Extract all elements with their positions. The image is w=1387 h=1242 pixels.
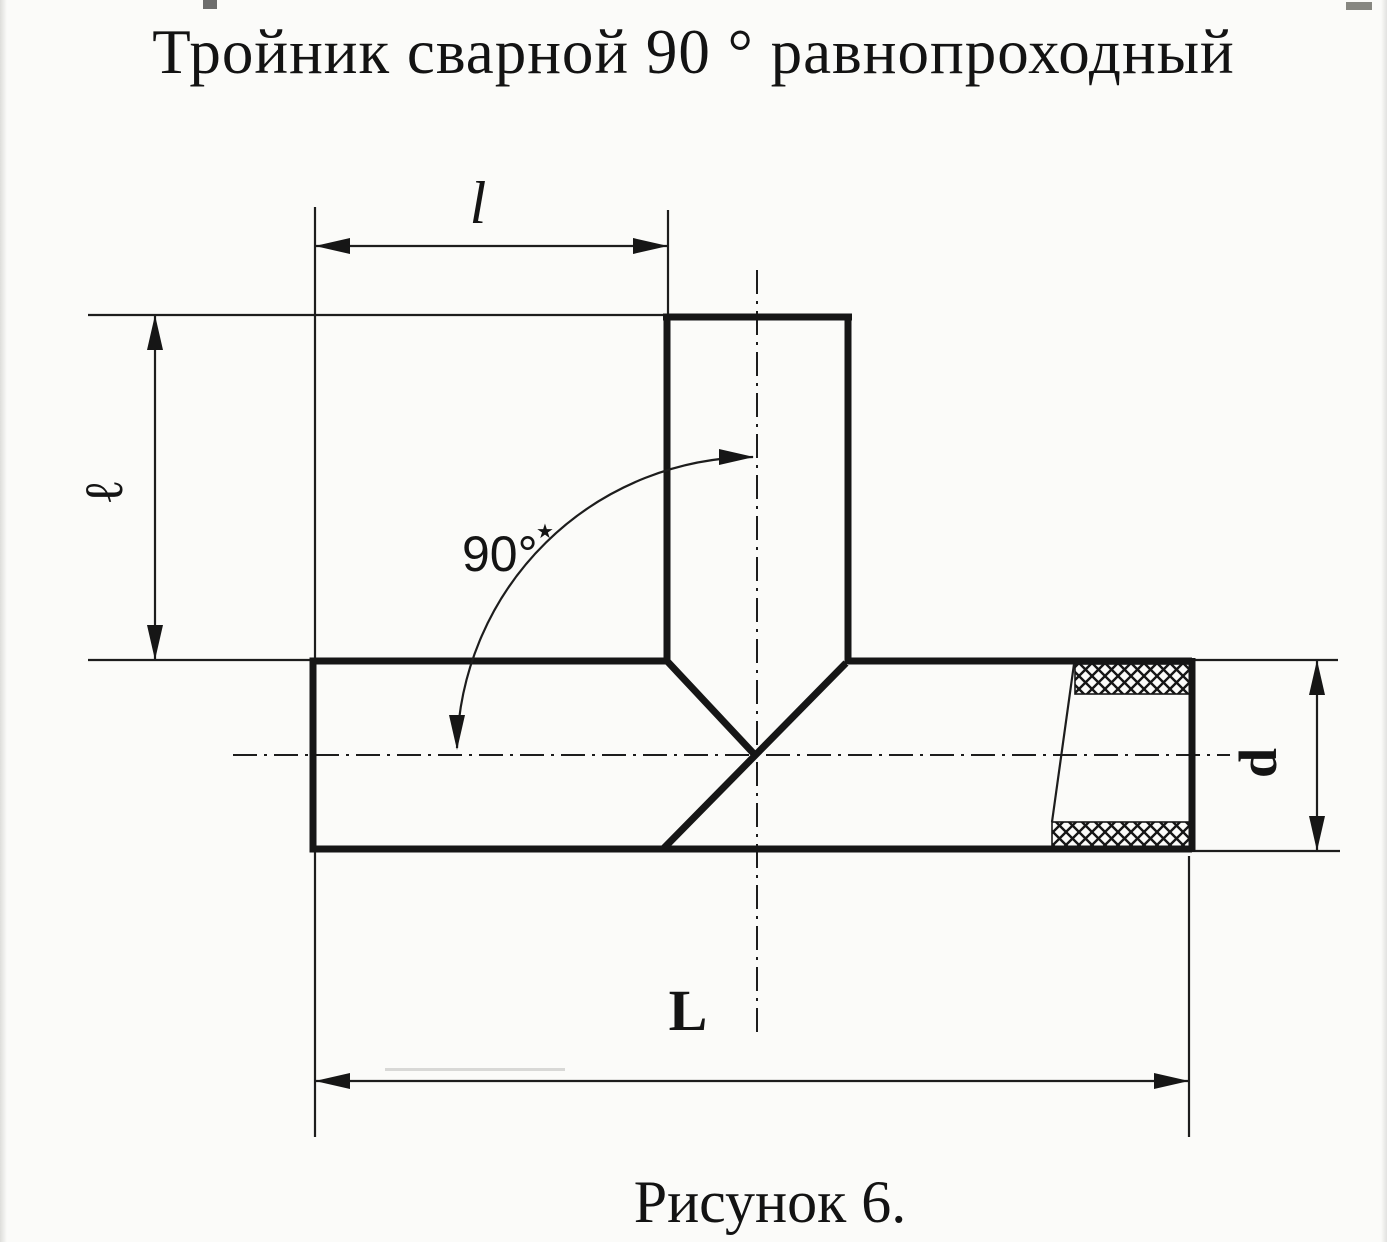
wall-section-hatch-bottom [1052,822,1190,848]
dimension-l: l [315,170,668,254]
arrowhead-right-icon [633,238,668,254]
arrowhead-arc-right-icon [719,449,754,465]
arrowhead-down-icon [1309,816,1325,851]
wall-section-hatch-top [1075,664,1190,694]
label-diameter: d [1228,748,1288,778]
arrowhead-up-icon [147,315,163,350]
dimension-d: d [1228,660,1325,851]
arrowhead-right-icon [1154,1073,1189,1089]
arrowhead-up-icon [1309,660,1325,695]
label-angle: 90° [462,526,538,582]
scanned-page: Тройник сварной 90 ° равнопроходный [0,0,1387,1242]
label-branch-height: ℓ [74,479,134,505]
label-branch-length: l [470,170,487,236]
dimension-ell: ℓ [74,315,163,660]
arrowhead-left-icon [315,1073,350,1089]
weld-joint-left-line [667,661,755,755]
arrowhead-left-icon [315,238,350,254]
label-overall-length: L [669,978,708,1043]
dimension-L: L [315,978,1189,1089]
label-angle-star-icon: ★ [536,521,554,543]
arrowhead-down-icon [147,625,163,660]
arrowhead-arc-down-icon [449,715,465,750]
tee-drawing: l ℓ 90° ★ d L [0,0,1387,1242]
section-break-line [1052,664,1074,822]
figure-caption: Рисунок 6. [540,1168,1000,1237]
